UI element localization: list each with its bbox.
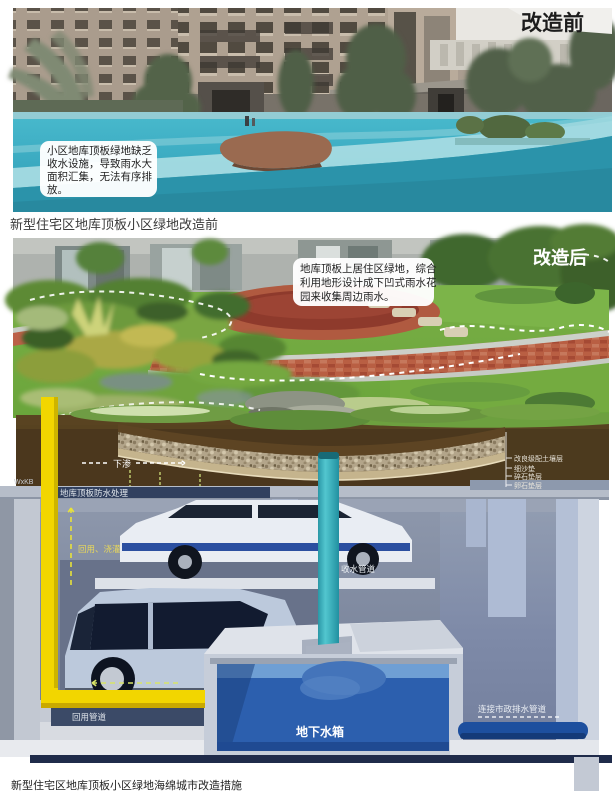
svg-text:细沙垫: 细沙垫 xyxy=(514,464,535,473)
svg-text:园来收集周边雨水。: 园来收集周边雨水。 xyxy=(300,290,395,303)
svg-text:收水管道: 收水管道 xyxy=(341,564,376,574)
svg-text:小区地库顶板绿地缺乏: 小区地库顶板绿地缺乏 xyxy=(47,144,152,157)
svg-text:回用、浇灌: 回用、浇灌 xyxy=(78,544,121,554)
svg-text:改造后: 改造后 xyxy=(533,247,587,268)
svg-text:新型住宅区地库顶板小区绿地改造前: 新型住宅区地库顶板小区绿地改造前 xyxy=(10,217,218,232)
svg-text:卵石垫层: 卵石垫层 xyxy=(514,481,542,490)
svg-text:地下水箱: 地下水箱 xyxy=(296,724,344,739)
svg-text:碎石垫层: 碎石垫层 xyxy=(514,472,542,481)
svg-text:收水设施，导致雨水大: 收水设施，导致雨水大 xyxy=(47,157,152,170)
svg-text:新型住宅区地库顶板小区绿地海绵城市改造措施: 新型住宅区地库顶板小区绿地海绵城市改造措施 xyxy=(11,778,242,792)
svg-text:地库顶板上居住区绿地，综合: 地库顶板上居住区绿地，综合 xyxy=(300,262,437,275)
svg-text:连接市政排水管道: 连接市政排水管道 xyxy=(478,704,547,714)
svg-text:WxKB: WxKB xyxy=(14,479,34,486)
svg-text:回用管道: 回用管道 xyxy=(72,712,107,722)
svg-text:面积汇集，无法有序排: 面积汇集，无法有序排 xyxy=(47,170,152,183)
svg-text:下渗: 下渗 xyxy=(113,458,131,469)
svg-text:地库顶板防水处理: 地库顶板防水处理 xyxy=(60,488,129,498)
svg-text:改造前: 改造前 xyxy=(521,11,584,35)
svg-text:改良级配土壤层: 改良级配土壤层 xyxy=(514,454,563,463)
svg-text:利用地形设计成下凹式雨水花: 利用地形设计成下凹式雨水花 xyxy=(300,276,437,289)
svg-text:放。: 放。 xyxy=(47,183,68,196)
